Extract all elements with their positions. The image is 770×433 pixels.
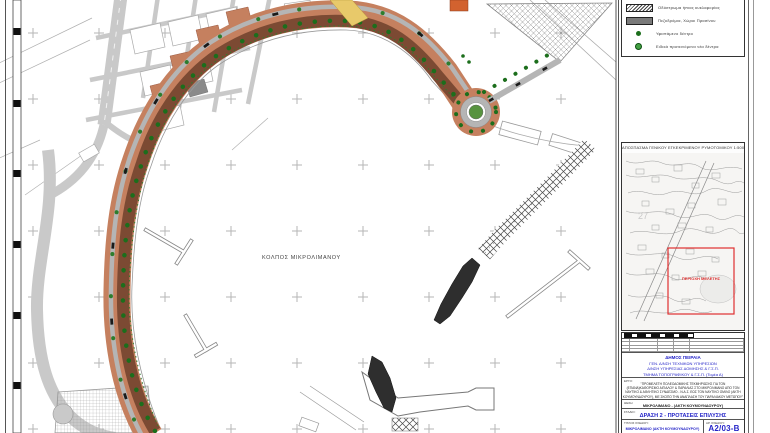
title-block: ΔΗΜΟΣ ΠΕΙΡΑΙΑ ΓΕΝ. Δ/ΝΣΗ ΤΕΧΝΙΚΩΝ ΥΠΗΡΕΣ… [621,332,745,433]
location-map-box: ΑΠΟΣΠΑΣΜΑ ΓΕΝΙΚΟΥ ΕΓΚΕΚΡΙΜΕΝΟΥ ΡΥΜΟΤΟΜΙΚ… [621,142,745,331]
hatch-swatch [626,4,653,12]
gray-swatch [626,17,653,25]
location-row: ΘΕΣΗ: ΜΙΚΡΟΛΙΜΑΝΟ - (ΑΚΤΗ ΚΟΥΜΟΥΝΔΟΥΡΟΥ) [622,400,744,409]
action-row: ΣΤΑΔΙΟ: ΔΡΑΣΗ 2 - ΠΡΟΤΑΣΕΙΣ ΕΠΙΛΥΣΗΣ [622,409,744,420]
legend-label: Οδόστρωμα ήπιας κυκλοφορίας [658,5,720,10]
new-tree-dot-icon [635,43,642,50]
sheet-border-outer [748,0,749,433]
project-line: ΚΟΥΜΟΥΝΔΟΥΡΟΥ), ΜΕ ΣΚΟΠΟ ΤΗΝ ΑΝΑΠΛΑΣΗ ΤΟ… [622,395,744,399]
location-value: ΜΙΚΡΟΛΙΜΑΝΟ - (ΑΚΤΗ ΚΟΥΜΟΥΝΔΟΥΡΟΥ) [622,400,744,408]
authority-block: ΔΗΜΟΣ ΠΕΙΡΑΙΑ ΓΕΝ. Δ/ΝΣΗ ΤΕΧΝΙΚΩΝ ΥΠΗΡΕΣ… [622,353,744,378]
field-caption: ΣΤΑΔΙΟ: [624,410,635,414]
legend-label: Πεζοδρόμια, Χώροι Πρασίνου [658,18,716,23]
orange-building [450,0,468,11]
tree-dot-icon [636,31,641,36]
drawing-number-cell: ΑΡ. ΣΧΕΔΙΟΥ: Α2/03-Β [704,420,744,433]
drawing-sheet-side-panel: Οδόστρωμα ήπιας κυκλοφορίας Πεζοδρόμια, … [618,0,748,433]
sea-label: ΚΟΛΠΟΣ ΜΙΚΡΟΛΙΜΑΝΟΥ [262,255,341,261]
contour-number: 27 [638,211,648,221]
study-area-label: ΠΕΡΙΟΧΗ ΜΕΛΕΤΗΣ [682,276,721,281]
legend-label: Υφιστάμενο δέντρο [656,31,693,36]
location-map-title: ΑΠΟΣΠΑΣΜΑ ΓΕΝΙΚΟΥ ΕΓΚΕΚΡΙΜΕΝΟΥ ΡΥΜΟΤΟΜΙΚ… [622,143,744,153]
action-value: ΔΡΑΣΗ 2 - ΠΡΟΤΑΣΕΙΣ ΕΠΙΛΥΣΗΣ [622,409,744,419]
authority-line: ΤΜΗΜΑ ΤΟΠΟΓΡΑΦΙΚΟΥ & Γ.Σ.Π. (Τομέα Α) [622,372,744,378]
legend-item: Ειδικά προτεινόμενα νέα δέντρα [626,40,744,53]
sheet-trim-line [753,0,754,433]
revision-table [622,339,744,353]
sheet-title-cell: ΤΙΤΛΟΣ ΣΧΕΔΙΟΥ: ΜΙΚΡΟΛΙΜΑΝΟ (ΑΚΤΗ ΚΟΥΜΟΥ… [622,420,704,433]
sheet-id-row: ΤΙΤΛΟΣ ΣΧΕΔΙΟΥ: ΜΙΚΡΟΛΙΜΑΝΟ (ΑΚΤΗ ΚΟΥΜΟΥ… [622,420,744,433]
field-caption: ΕΡΓΟ: [624,379,633,383]
location-map-sketch: 27 ΠΕΡΙΟΧΗ ΜΕΛΕΤΗΣ [622,153,744,330]
legend-item: Οδόστρωμα ήπιας κυκλοφορίας [626,1,744,14]
legend-box: Οδόστρωμα ήπιας κυκλοφορίας Πεζοδρόμια, … [621,0,745,57]
site-plan-map: ΚΟΛΠΟΣ ΜΙΚΡΟΛΙΜΑΝΟΥ [0,0,618,433]
field-caption: ΑΡ. ΣΧΕΔΙΟΥ: [706,421,725,425]
legend-label: Ειδικά προτεινόμενα νέα δέντρα [656,44,719,49]
field-caption: ΤΙΤΛΟΣ ΣΧΕΔΙΟΥ: [624,421,649,425]
project-title-block: ΕΡΓΟ: "ΠΡΟΜΕΛΕΤΗ ΠΟΛΕΟΔΟΜΙΚΗΣ ΤΕΚΜΗΡΙΩΣΗ… [622,378,744,400]
roundabout-green-center [469,105,483,119]
road-turnaround [53,404,73,424]
field-caption: ΘΕΣΗ: [624,401,633,405]
legend-item: Πεζοδρόμια, Χώροι Πρασίνου [626,14,744,27]
scale-ruler [13,0,21,433]
legend-item: Υφιστάμενο δέντρο [626,27,744,40]
